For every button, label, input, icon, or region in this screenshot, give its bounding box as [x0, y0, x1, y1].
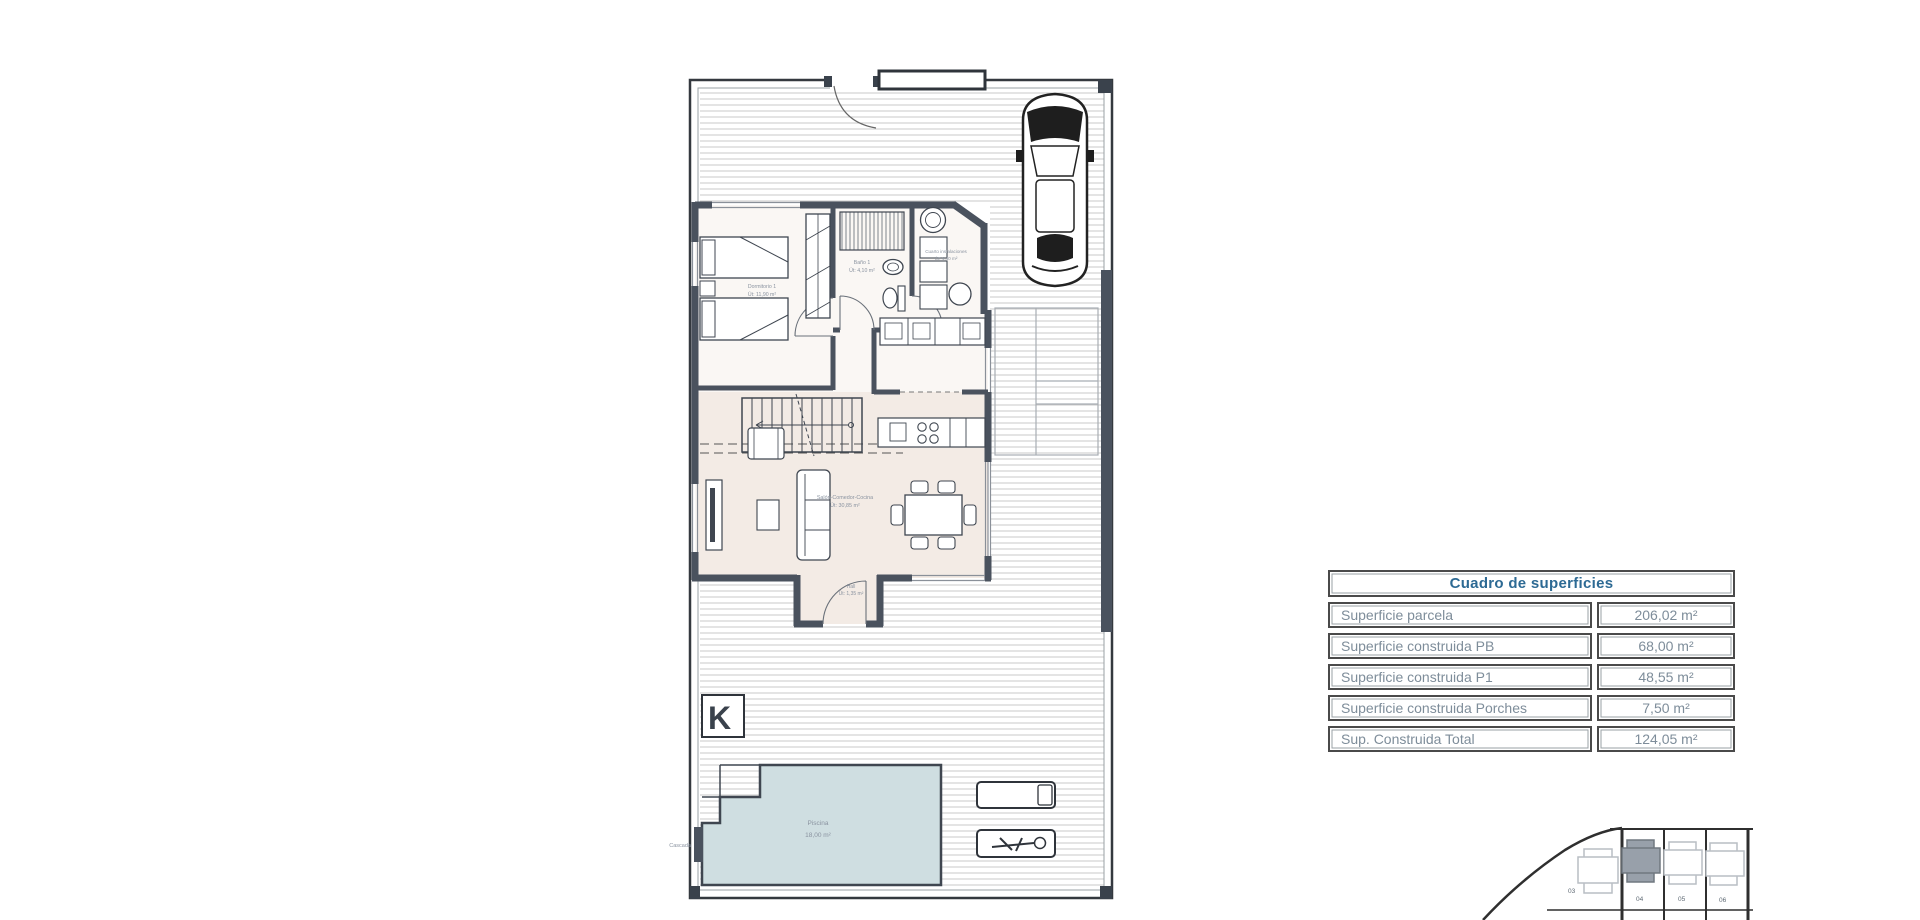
coffee-table: [757, 500, 779, 530]
logo-letter: K: [708, 700, 731, 736]
surfaces-table: Cuadro de superficies Superficie parcela…: [1328, 570, 1735, 757]
pool-label: Piscina: [808, 820, 829, 827]
table-row: Superficie construida P1 48,55 m²: [1328, 664, 1735, 690]
surfaces-table-title: Cuadro de superficies: [1450, 575, 1614, 592]
toilet-tank: [898, 286, 905, 311]
bath-label: Baño 1: [854, 260, 871, 266]
sink: [883, 260, 903, 275]
dining-table: [905, 495, 962, 535]
row-label-cell: Superficie construida PB: [1328, 633, 1592, 659]
sofa: [797, 470, 830, 560]
logo-box: K: [702, 695, 744, 737]
table-row: Superficie parcela 206,02 m²: [1328, 602, 1735, 628]
row-label: Superficie parcela: [1330, 607, 1453, 623]
utility-area-label: Út: 4,40 m²: [935, 255, 958, 261]
kitchen-counter-top: [880, 318, 985, 345]
plot-house-06: [1706, 843, 1744, 885]
row-label-cell: Sup. Construida Total: [1328, 726, 1592, 752]
bed-1-pillow: [702, 240, 715, 275]
cascade-feature: [694, 827, 703, 862]
row-label: Superficie construida P1: [1330, 669, 1493, 685]
plot-label-04: 04: [1636, 896, 1644, 903]
corner-post-top-right: [1098, 80, 1112, 93]
site-map: 03 04 05 06: [1483, 828, 1753, 920]
row-value: 7,50 m²: [1642, 700, 1689, 716]
corner-post-bottom-right: [1100, 886, 1112, 899]
row-value: 68,00 m²: [1638, 638, 1693, 654]
car-icon: [1016, 94, 1094, 286]
row-value: 206,02 m²: [1634, 607, 1697, 623]
corner-post-bottom-left: [690, 886, 700, 899]
armchair: [748, 428, 784, 459]
row-value-cell: 206,02 m²: [1597, 602, 1735, 628]
pool-area-label: 18,00 m²: [805, 832, 831, 839]
row-value-cell: 7,50 m²: [1597, 695, 1735, 721]
plot-label-06: 06: [1719, 897, 1727, 904]
plot-house-03: [1578, 849, 1618, 893]
page: K Piscina 18,00 m² Cascada Dormitorio 1 …: [0, 0, 1920, 920]
site-map-houses: [1578, 840, 1744, 893]
plot-house-05: [1664, 842, 1702, 884]
pergola: [879, 71, 985, 89]
row-label-cell: Superficie construida Porches: [1328, 695, 1592, 721]
bath-area-label: Út: 4,10 m²: [849, 267, 875, 274]
tv: [710, 488, 715, 542]
row-label-cell: Superficie parcela: [1328, 602, 1592, 628]
row-value-cell: 124,05 m²: [1597, 726, 1735, 752]
row-label: Superficie construida Porches: [1330, 700, 1527, 716]
plot-label-05: 05: [1678, 896, 1686, 903]
utility-label: Cuarto instalaciones: [925, 249, 967, 254]
cascade-label: Cascada: [669, 843, 692, 849]
bedroom-label: Dormitorio 1: [748, 284, 776, 290]
bed-2-pillow: [702, 301, 715, 337]
row-value-cell: 48,55 m²: [1597, 664, 1735, 690]
hall-label: Hall: [847, 584, 856, 590]
house-ground-floor: [692, 202, 991, 626]
bedroom-area-label: Út: 11,90 m²: [748, 291, 776, 298]
plot-label-03: 03: [1568, 888, 1576, 895]
table-row: Superficie construida PB 68,00 m²: [1328, 633, 1735, 659]
row-value: 48,55 m²: [1638, 669, 1693, 685]
hall-area-label: Út: 1,35 m²: [839, 590, 864, 597]
party-wall-right: [1101, 270, 1112, 632]
table-row: Superficie construida Porches 7,50 m²: [1328, 695, 1735, 721]
surfaces-table-header: Cuadro de superficies: [1328, 570, 1735, 597]
hall-floor: [797, 578, 880, 624]
nightstand: [700, 281, 715, 296]
gate-post-left: [824, 76, 832, 87]
row-label-cell: Superficie construida P1: [1328, 664, 1592, 690]
gate-opening: [830, 77, 879, 91]
plot-house-04-highlighted: [1622, 840, 1660, 882]
floor-plan-drawing: K Piscina 18,00 m² Cascada Dormitorio 1 …: [0, 0, 1920, 920]
row-value-cell: 68,00 m²: [1597, 633, 1735, 659]
toilet-bowl: [883, 288, 897, 308]
living-area-label: Út: 30,85 m²: [830, 502, 860, 509]
shower: [840, 212, 904, 250]
table-row: Sup. Construida Total 124,05 m²: [1328, 726, 1735, 752]
living-label: Salón-Comedor-Cocina: [817, 495, 873, 501]
water-heater: [949, 283, 971, 305]
row-label: Superficie construida PB: [1330, 638, 1494, 654]
row-value: 124,05 m²: [1634, 731, 1697, 747]
row-label: Sup. Construida Total: [1330, 731, 1475, 747]
